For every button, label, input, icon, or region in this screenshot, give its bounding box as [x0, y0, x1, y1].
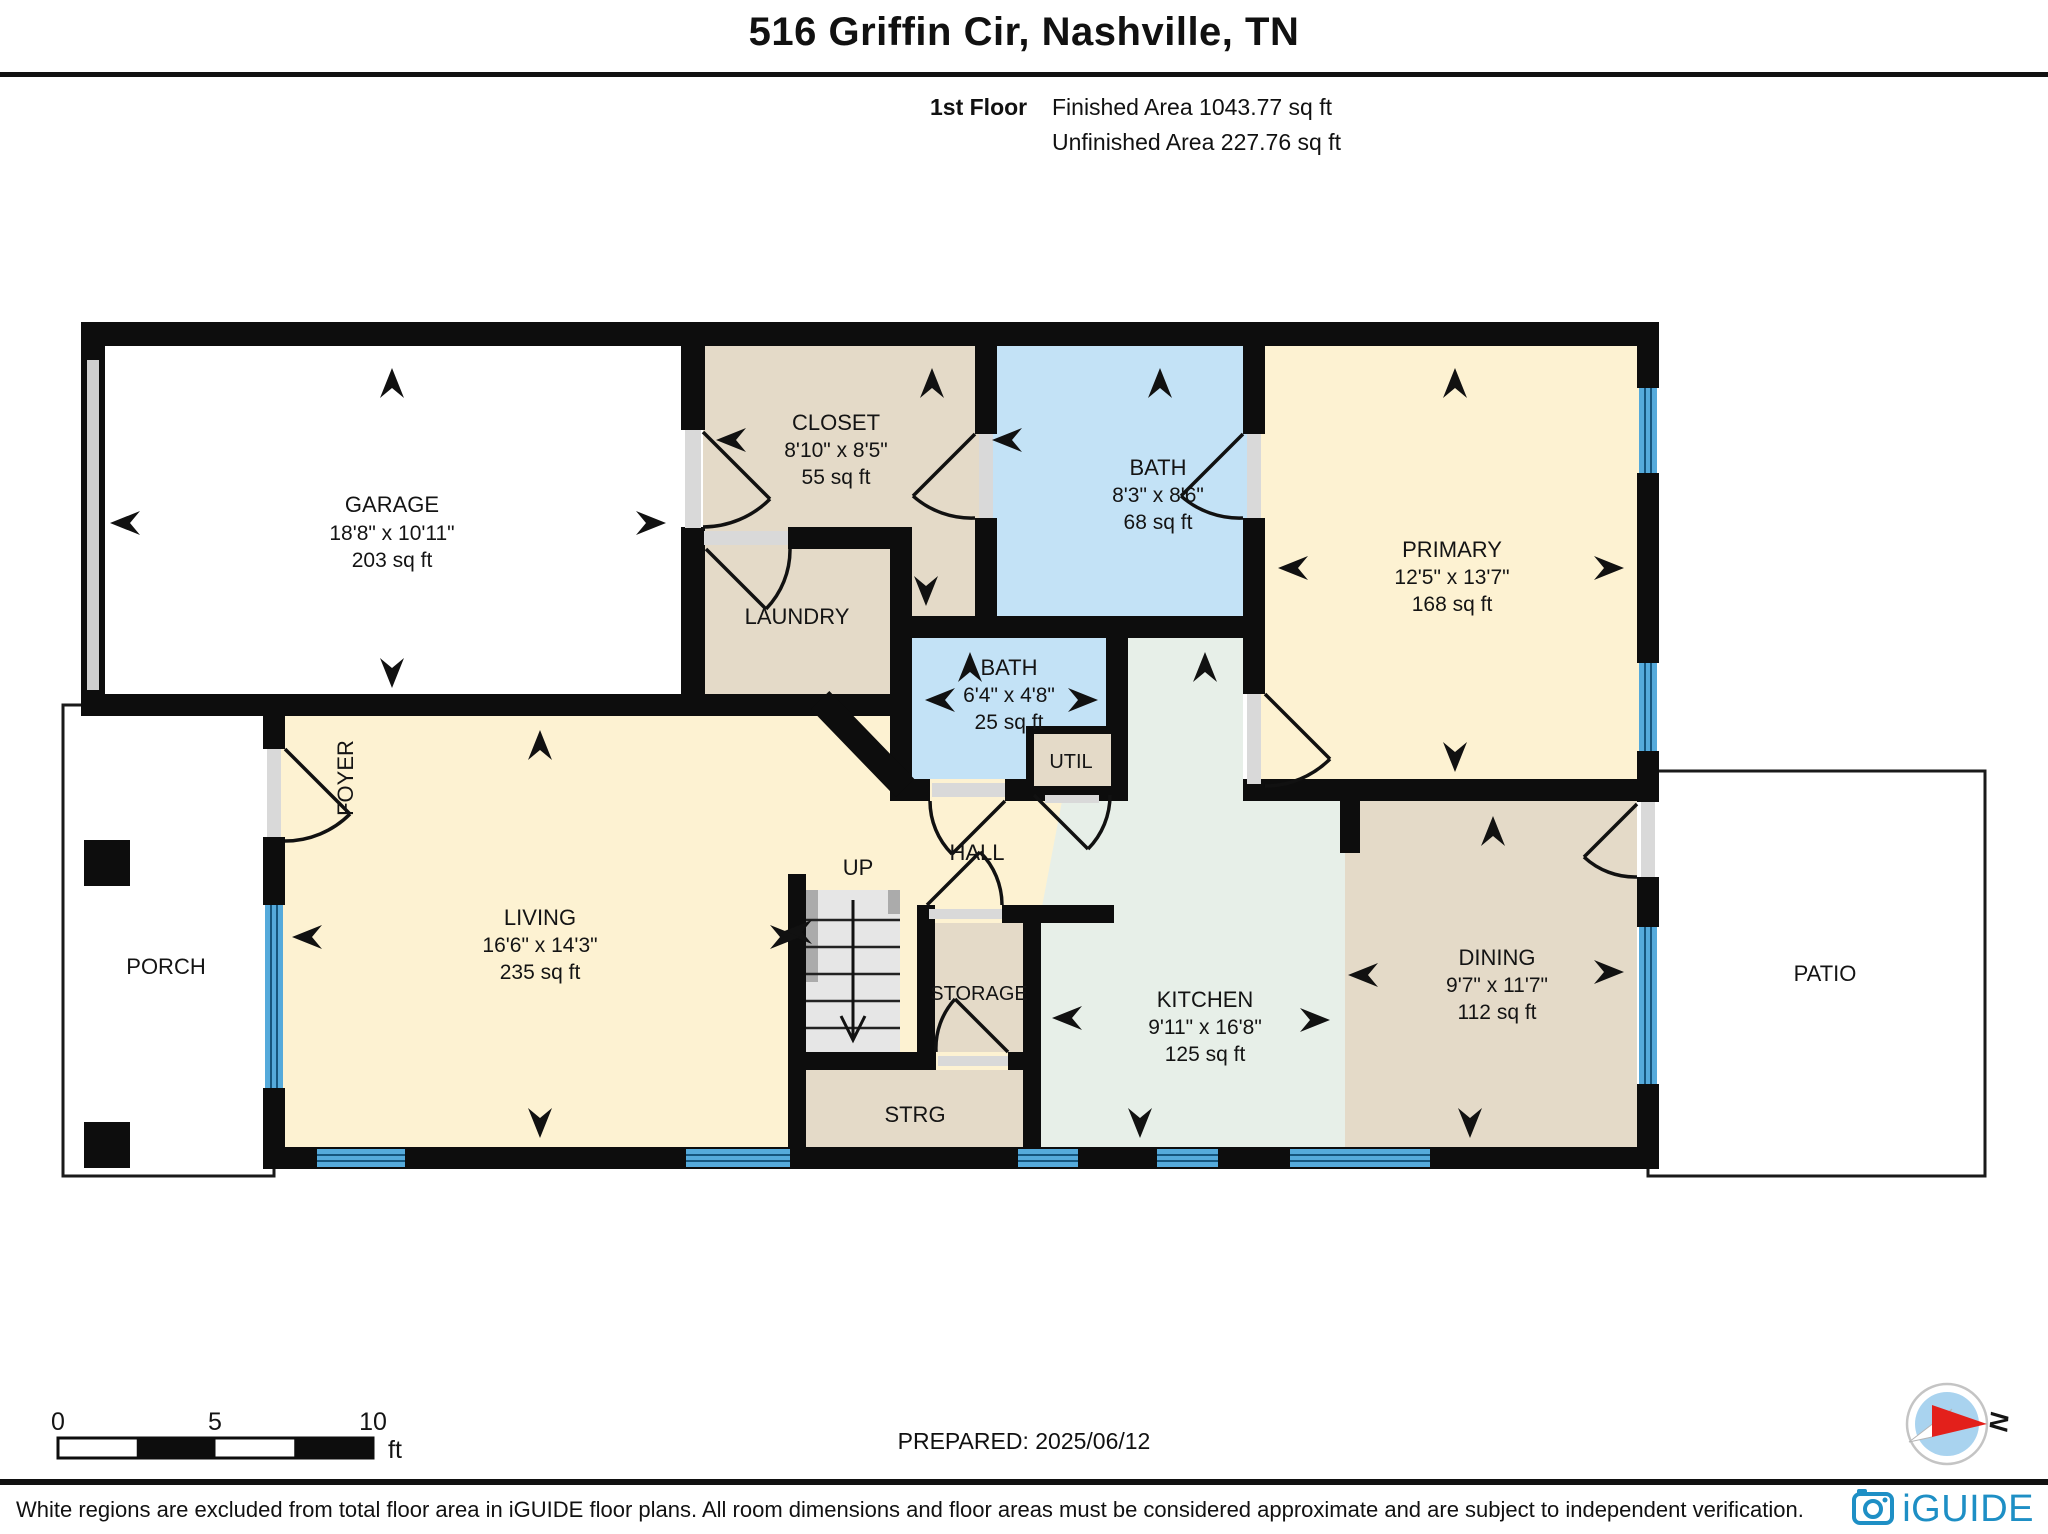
svg-text:8'3" x 8'6": 8'3" x 8'6" [1112, 484, 1204, 507]
porch-label: PORCH [126, 954, 205, 979]
strg-label: STRG [884, 1102, 945, 1127]
svg-text:25 sq ft: 25 sq ft [975, 711, 1044, 734]
svg-text:6'4" x 4'8": 6'4" x 4'8" [963, 684, 1055, 707]
kitchen-label: KITCHEN 9'11" x 16'8" 125 sq ft [1148, 987, 1262, 1066]
hall-label: HALL [949, 840, 1004, 865]
svg-text:CLOSET: CLOSET [792, 410, 880, 435]
svg-text:55 sq ft: 55 sq ft [802, 466, 871, 489]
porch-outline [63, 705, 274, 1176]
svg-text:68 sq ft: 68 sq ft [1124, 511, 1193, 534]
prepared-date: PREPARED: 2025/06/12 [0, 1428, 2048, 1455]
up-label: UP [843, 855, 874, 880]
svg-text:DINING: DINING [1459, 945, 1536, 970]
svg-text:9'7" x 11'7": 9'7" x 11'7" [1446, 974, 1548, 997]
svg-text:KITCHEN: KITCHEN [1157, 987, 1254, 1012]
util-label: UTIL [1049, 751, 1092, 773]
camera-icon [1851, 1488, 1895, 1531]
floorplan-page: 516 Griffin Cir, Nashville, TN 1st Floor… [0, 0, 2048, 1534]
svg-text:16'6" x 14'3": 16'6" x 14'3" [482, 934, 597, 957]
dining-label: DINING 9'7" x 11'7" 112 sq ft [1446, 945, 1548, 1024]
disclaimer-text: White regions are excluded from total fl… [16, 1497, 1804, 1523]
garage-area [81, 322, 692, 716]
svg-text:BATH: BATH [980, 655, 1037, 680]
svg-text:125 sq ft: 125 sq ft [1165, 1043, 1246, 1066]
svg-text:PRIMARY: PRIMARY [1402, 537, 1502, 562]
svg-text:LIVING: LIVING [504, 905, 576, 930]
svg-text:GARAGE: GARAGE [345, 492, 439, 517]
staircase [806, 890, 900, 1052]
storage-label: STORAGE [930, 983, 1027, 1005]
patio-label: PATIO [1794, 961, 1857, 986]
svg-text:8'10" x 8'5": 8'10" x 8'5" [784, 439, 888, 462]
svg-text:203 sq ft: 203 sq ft [352, 549, 433, 572]
svg-text:12'5" x 13'7": 12'5" x 13'7" [1394, 566, 1509, 589]
svg-text:9'11" x 16'8": 9'11" x 16'8" [1148, 1016, 1262, 1039]
iguide-logo: iGUIDE [1851, 1488, 2034, 1531]
svg-text:18'8" x 10'11": 18'8" x 10'11" [329, 522, 454, 545]
floorplan-drawing: GARAGE 18'8" x 10'11" 203 sq ft CLOSET 8… [0, 0, 2048, 1534]
foyer-label: FOYER [333, 740, 358, 816]
brand-name: iGUIDE [1902, 1488, 2034, 1531]
svg-text:112 sq ft: 112 sq ft [1458, 1001, 1537, 1024]
footer-divider [0, 1479, 2048, 1485]
svg-text:235 sq ft: 235 sq ft [500, 961, 581, 984]
svg-text:168 sq ft: 168 sq ft [1412, 593, 1493, 616]
svg-text:BATH: BATH [1129, 455, 1186, 480]
laundry-label: LAUNDRY [745, 604, 850, 629]
